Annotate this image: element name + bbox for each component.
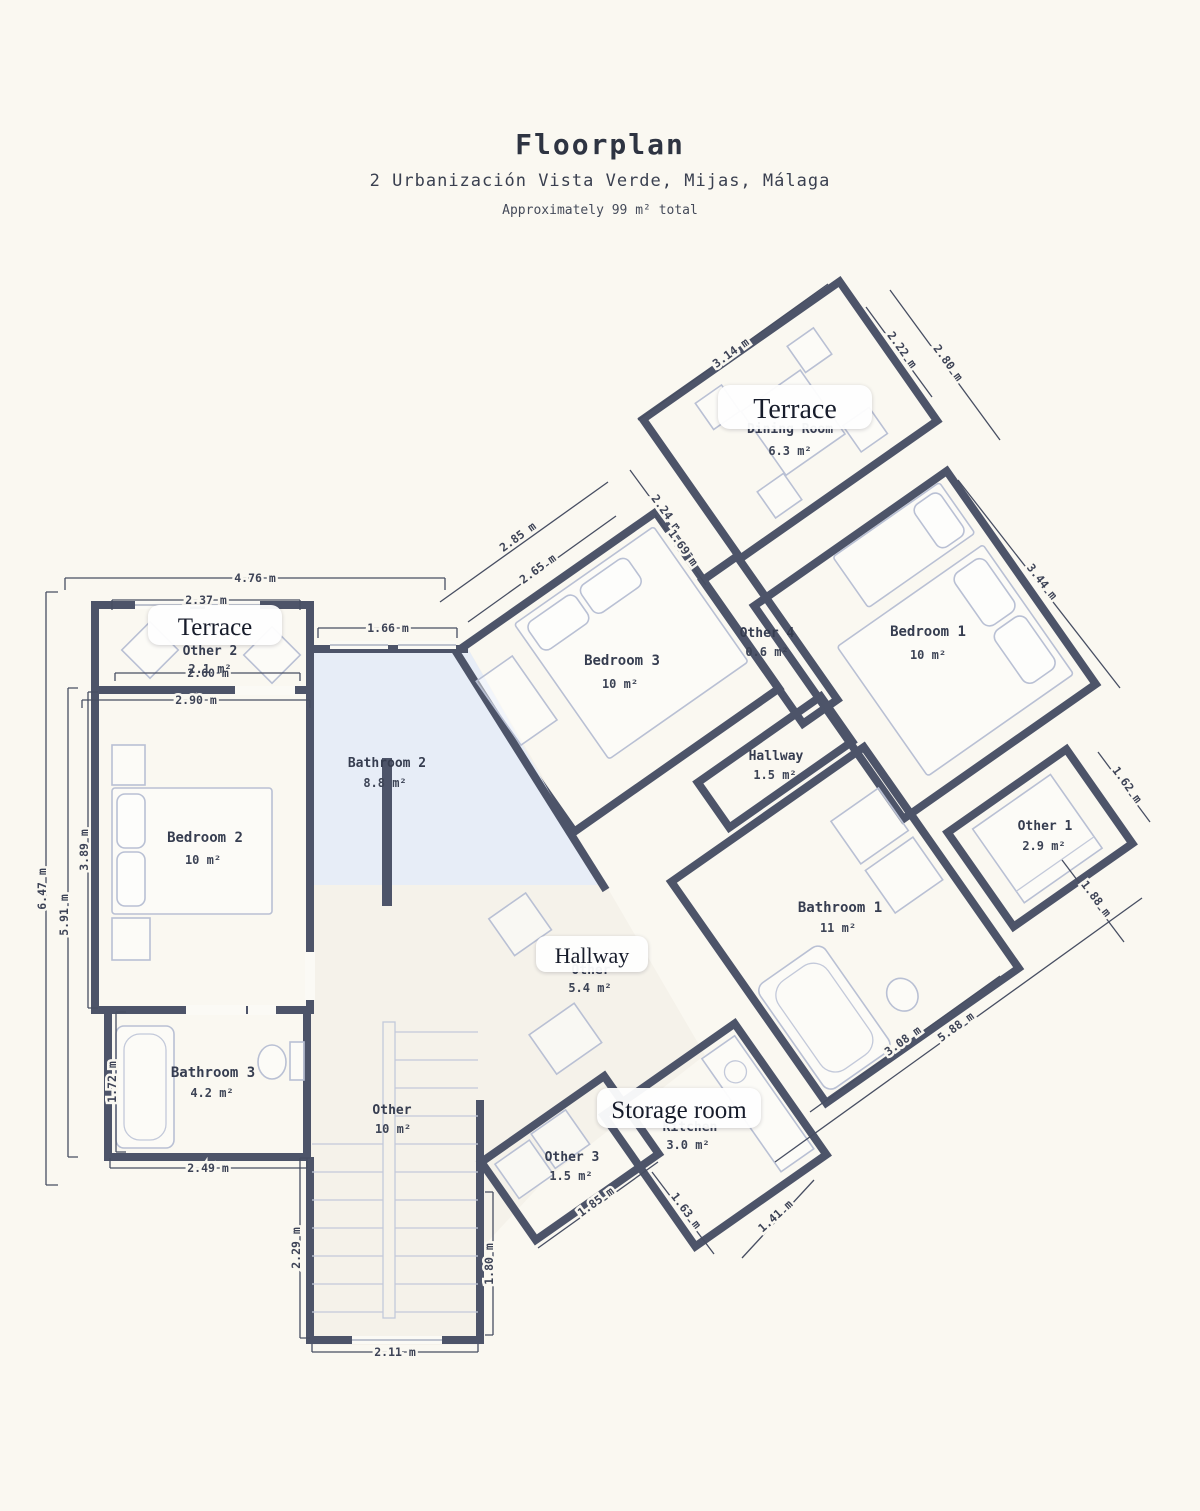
room-area: 10 m² xyxy=(602,677,638,691)
pillow-icon xyxy=(117,852,145,906)
room-label: Other 2 xyxy=(183,644,238,659)
dimension-label: 2.49 m xyxy=(187,1161,229,1175)
overlay-label-storage-room: Storage room xyxy=(611,1097,747,1124)
overlay-label-hallway: Hallway xyxy=(555,943,630,968)
room-area: 5.4 m² xyxy=(568,981,611,995)
pillow-icon xyxy=(117,794,145,848)
room-label: Bathroom 2 xyxy=(348,756,426,771)
dimension-label: 1.88 m xyxy=(1078,878,1114,920)
dimension-label: 2.11 m xyxy=(374,1345,416,1359)
door-gap xyxy=(305,952,315,1000)
nightstand-icon xyxy=(112,918,150,960)
chair-icon xyxy=(757,473,802,518)
floorplan-drawing: 4.76 m 2.37 m 1.66 m 2.60 m 2.90 m 6.47 … xyxy=(0,0,1200,1511)
overlay-label-terrace-top: Terrace xyxy=(753,394,837,425)
room-label: Bathroom 3 xyxy=(171,1065,255,1081)
chair-icon xyxy=(787,328,832,373)
door-gap xyxy=(248,1005,276,1015)
dimension-label: 1.80 m xyxy=(482,1243,496,1285)
dimension-label: 2.29 m xyxy=(289,1227,303,1269)
room-label: Hallway xyxy=(749,749,804,764)
room-area: 10 m² xyxy=(185,853,221,867)
room-area: 10 m² xyxy=(910,648,946,662)
room-area: 10 m² xyxy=(375,1122,411,1136)
overlay-label-terrace-left: Terrace xyxy=(178,614,253,641)
dimension-label: 2.80 m xyxy=(930,342,966,384)
room-label: Bedroom 1 xyxy=(890,624,966,640)
room-area: 1.5 m² xyxy=(753,768,796,782)
dimension-label: 2.90 m xyxy=(175,693,217,707)
toilet-icon xyxy=(880,972,924,1017)
floorplan-page: Floorplan 2 Urbanización Vista Verde, Mi… xyxy=(0,0,1200,1511)
room-area: 4.2 m² xyxy=(190,1086,233,1100)
dimension-label: 4.76 m xyxy=(234,571,276,585)
dimension-label: 1.85 m xyxy=(575,1184,617,1220)
dimension-label: 3.89 m xyxy=(77,829,91,871)
room-label: Other 3 xyxy=(545,1150,600,1165)
dimension-label: 5.91 m xyxy=(57,894,71,936)
toilet-tank xyxy=(290,1042,304,1080)
dimension-label: 2.37 m xyxy=(185,593,227,607)
nightstand-icon xyxy=(112,745,145,785)
door-gap xyxy=(186,1005,246,1015)
room-area: 1.5 m² xyxy=(549,1169,592,1183)
room-area: 0.6 m² xyxy=(745,645,788,659)
dimension-label: 1.62 m xyxy=(1109,764,1145,806)
door-gap xyxy=(235,686,295,695)
room-area: 6.3 m² xyxy=(768,444,811,458)
room-label: Other 4 xyxy=(740,626,795,641)
room-area: 3.0 m² xyxy=(666,1138,709,1152)
room-label: Bedroom 3 xyxy=(584,653,660,669)
dimension-label: 1.66 m xyxy=(367,621,409,635)
dimension-label: 1.72 m xyxy=(105,1061,119,1103)
toilet-icon xyxy=(258,1045,286,1079)
room-area: 11 m² xyxy=(820,921,856,935)
room-area: 2.1 m² xyxy=(188,662,231,676)
room-area: 8.8 m² xyxy=(363,776,406,790)
room-label: Bedroom 2 xyxy=(167,830,243,846)
room-label: Bathroom 1 xyxy=(798,900,882,916)
room-label: Other xyxy=(372,1103,411,1118)
stair-rail xyxy=(383,1022,395,1318)
room-area: 2.9 m² xyxy=(1022,839,1065,853)
dimension-label: 3.14 m xyxy=(710,335,752,371)
dimension-label: 6.47 m xyxy=(35,868,49,910)
room-label: Other 1 xyxy=(1018,819,1073,834)
